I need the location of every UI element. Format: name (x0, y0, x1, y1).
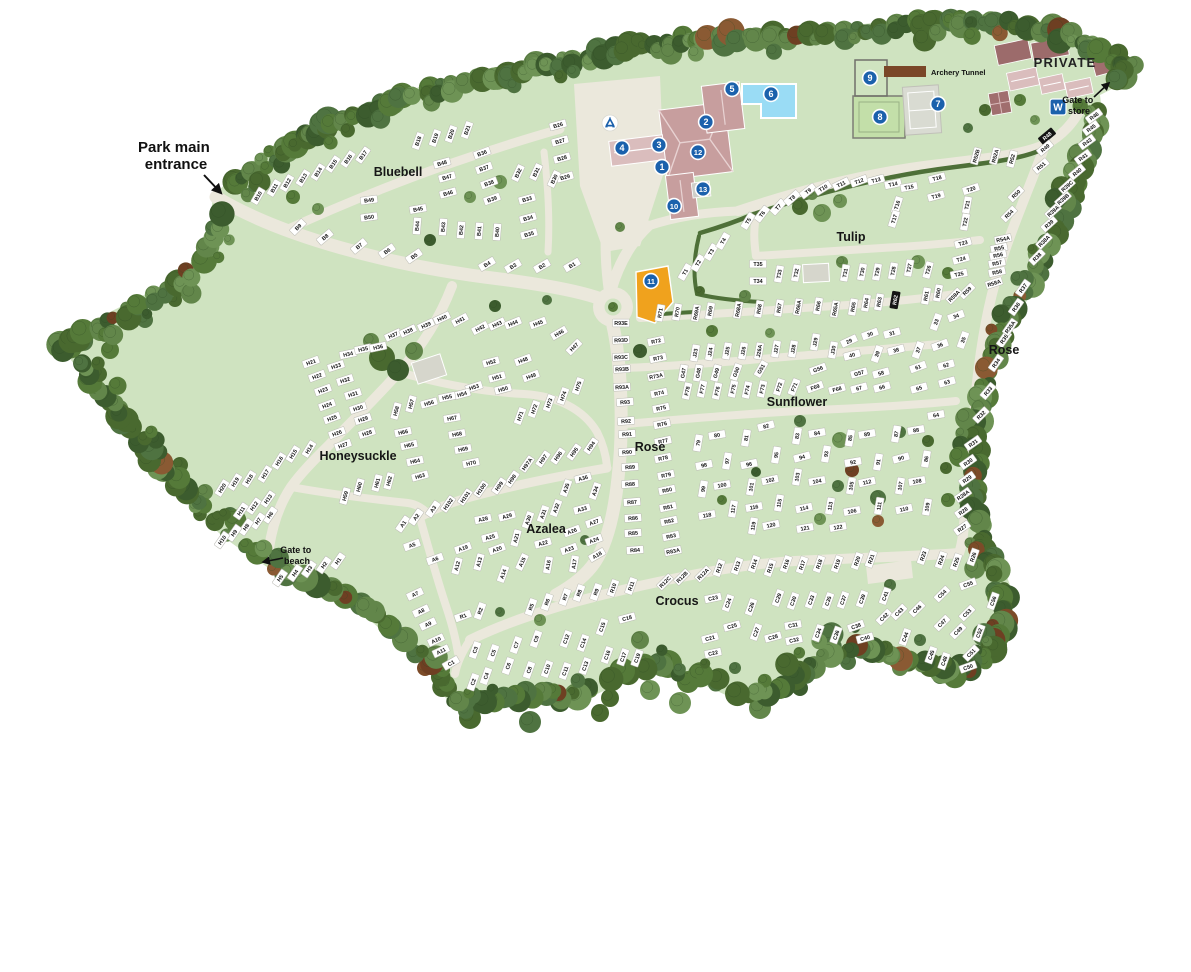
area-label: Honeysuckle (319, 449, 396, 463)
tree (286, 190, 300, 204)
tree (813, 204, 831, 222)
tree (534, 614, 546, 626)
svg-text:88: 88 (913, 428, 920, 435)
plot-marker: R93E (613, 319, 630, 327)
plot-marker: R85 (624, 528, 642, 537)
tree (424, 234, 436, 246)
svg-text:R92: R92 (621, 419, 631, 426)
facility-marker-4: 4 (615, 141, 630, 156)
tree (747, 683, 765, 701)
tree (1030, 115, 1040, 125)
svg-text:91: 91 (876, 459, 883, 466)
svg-text:2: 2 (703, 117, 708, 127)
facility-marker-11: 11 (644, 274, 659, 289)
archery-tunnel-strip (884, 66, 926, 77)
facility-marker-1: 1 (655, 160, 670, 175)
plot-marker: R91 (618, 429, 636, 438)
svg-text:87: 87 (894, 431, 901, 438)
area-label: Crocus (655, 594, 698, 608)
svg-text:R90: R90 (622, 450, 632, 457)
svg-text:5: 5 (729, 84, 734, 94)
tree (608, 302, 618, 312)
tree (571, 673, 586, 688)
tree (91, 357, 104, 370)
plot-marker: R93C (612, 353, 629, 362)
park-map: B1B2B3B4B5B6B7B8B9B10B11B12B13B14B15B16B… (0, 0, 1191, 972)
tree (751, 467, 761, 477)
tree (706, 325, 718, 337)
svg-text:89: 89 (864, 432, 871, 439)
plot-marker: R93 (616, 397, 634, 406)
svg-text:80: 80 (714, 433, 721, 440)
svg-text:8: 8 (877, 112, 882, 122)
plot-marker: R93B (613, 365, 630, 374)
tree (108, 377, 126, 395)
plot-marker: R84 (626, 545, 644, 554)
tree (213, 251, 225, 263)
tree (615, 222, 625, 232)
plot-marker: R87 (623, 497, 641, 506)
tree (775, 653, 799, 677)
tree (979, 104, 991, 116)
tree (356, 597, 377, 618)
plot-marker: R86 (624, 513, 642, 522)
tree (963, 27, 980, 44)
tree (729, 662, 741, 674)
area-label: Rose (635, 440, 666, 454)
svg-text:13: 13 (699, 185, 707, 194)
tree (387, 359, 409, 381)
svg-text:85: 85 (848, 435, 855, 442)
tree (145, 426, 157, 438)
tree (633, 344, 647, 358)
svg-text:R84: R84 (630, 548, 640, 555)
svg-text:R93B: R93B (615, 367, 629, 374)
facility-marker-10: 10 (667, 199, 682, 214)
tree (669, 692, 691, 714)
svg-text:6: 6 (768, 89, 773, 99)
svg-text:B43: B43 (441, 222, 448, 232)
plot-marker: R92 (617, 416, 635, 425)
tree (103, 325, 123, 345)
tree (416, 645, 429, 658)
plot-marker: B40 (492, 223, 501, 241)
svg-text:93: 93 (824, 451, 831, 458)
tree (725, 681, 750, 706)
svg-text:11: 11 (647, 277, 656, 286)
svg-text:7: 7 (935, 99, 940, 109)
svg-text:99: 99 (701, 486, 708, 493)
svg-text:B42: B42 (459, 225, 466, 235)
svg-text:R86: R86 (628, 516, 638, 523)
facility-marker-2: 2 (699, 115, 714, 130)
svg-text:10: 10 (670, 202, 678, 211)
tree (209, 201, 234, 226)
tree (1107, 69, 1127, 89)
plot-marker: T35 (750, 260, 767, 268)
tree (255, 540, 273, 558)
facility-building (803, 263, 830, 282)
svg-text:R93A: R93A (615, 385, 629, 392)
svg-text:B44: B44 (415, 221, 422, 231)
svg-text:79: 79 (696, 440, 703, 447)
area-label: Sunflower (767, 395, 828, 409)
plot-marker: B41 (474, 222, 483, 240)
facility-marker-12: 12 (691, 145, 706, 160)
svg-text:1: 1 (659, 162, 664, 172)
plot-marker: R88 (621, 479, 639, 488)
tree (963, 123, 973, 133)
tree (340, 123, 354, 137)
svg-text:84: 84 (814, 431, 821, 438)
svg-text:B40: B40 (495, 227, 502, 237)
svg-text:95: 95 (774, 452, 781, 459)
tree (640, 680, 660, 700)
tree (832, 480, 844, 492)
tree (403, 87, 421, 105)
tree (992, 304, 1011, 323)
plot-marker: B44 (412, 217, 421, 235)
tree (941, 493, 955, 507)
tree (965, 16, 978, 29)
svg-text:R88: R88 (625, 482, 635, 489)
svg-text:81: 81 (744, 435, 751, 442)
tree (986, 565, 1002, 581)
tree (599, 667, 624, 692)
plot-marker: R90 (618, 447, 636, 456)
tree (765, 328, 775, 338)
plot-marker: B42 (456, 221, 465, 239)
tree (567, 65, 580, 78)
tree (601, 689, 619, 707)
tree (739, 290, 751, 302)
svg-text:3: 3 (656, 140, 661, 150)
tree (495, 607, 505, 617)
tree (673, 663, 685, 675)
svg-text:64: 64 (933, 413, 940, 420)
svg-text:97: 97 (725, 458, 732, 465)
tree (982, 636, 992, 646)
svg-text:R91: R91 (622, 432, 632, 439)
facility-marker-7: 7 (931, 97, 946, 112)
svg-text:T35: T35 (753, 262, 762, 268)
tree (968, 510, 991, 533)
tree (519, 711, 541, 733)
plot-marker: T34 (750, 277, 767, 285)
tree (631, 631, 649, 649)
private-label: PRIVATE (1034, 55, 1097, 70)
area-label: Rose (989, 343, 1020, 357)
svg-text:R93: R93 (620, 400, 630, 407)
tree (74, 356, 88, 370)
tree (240, 538, 254, 552)
tree (717, 495, 727, 505)
svg-text:92: 92 (850, 460, 857, 467)
tree (940, 462, 952, 474)
tree (700, 658, 710, 668)
gate-beach-label: Gate to beach (280, 545, 314, 566)
svg-text:R93E: R93E (614, 321, 628, 327)
tree (914, 634, 926, 646)
recycle-icon (602, 115, 618, 131)
tree (405, 342, 423, 360)
facility-marker-13: 13 (696, 182, 711, 197)
tree (542, 295, 552, 305)
svg-text:4: 4 (619, 143, 624, 153)
tree (656, 644, 667, 655)
svg-text:R93D: R93D (614, 338, 628, 345)
entrance-arrow (204, 175, 221, 193)
tree (464, 191, 476, 203)
area-label: Bluebell (374, 165, 423, 179)
facility-marker-6: 6 (764, 87, 779, 102)
svg-text:86: 86 (924, 456, 931, 463)
tree (794, 415, 806, 427)
area-label: Azalea (526, 522, 567, 536)
tree (833, 194, 847, 208)
tree (766, 44, 782, 60)
tree (324, 136, 338, 150)
area-label: Tulip (837, 230, 866, 244)
svg-text:R85: R85 (628, 531, 638, 538)
plot-marker: R89 (621, 462, 639, 471)
tree (814, 513, 826, 525)
tree (142, 309, 152, 319)
svg-text:96: 96 (746, 461, 753, 468)
facility-marker-3: 3 (652, 138, 667, 153)
tree (922, 435, 934, 447)
tree (218, 508, 230, 520)
svg-text:12: 12 (694, 148, 702, 157)
facility-marker-8: 8 (873, 110, 888, 125)
facility-marker-9: 9 (863, 71, 878, 86)
plot-marker: R93D (612, 336, 629, 345)
svg-text:9: 9 (867, 73, 872, 83)
tree (591, 704, 609, 722)
archery-tunnel-label: Archery Tunnel (931, 68, 985, 77)
park-entrance-label: Park main entrance (138, 139, 214, 173)
svg-text:B41: B41 (477, 226, 484, 236)
svg-text:98: 98 (701, 462, 708, 469)
svg-text:R87: R87 (627, 500, 637, 507)
tree (489, 300, 501, 312)
tree (1014, 94, 1026, 106)
tree (695, 286, 705, 296)
tree (872, 515, 884, 527)
tree (814, 23, 836, 45)
tree (312, 203, 324, 215)
plot-marker: R93A (613, 383, 630, 392)
svg-text:T34: T34 (753, 279, 762, 285)
svg-text:R93C: R93C (614, 355, 628, 362)
plot-marker: B43 (438, 218, 447, 236)
facility-marker-5: 5 (725, 82, 740, 97)
svg-text:83: 83 (795, 433, 802, 440)
svg-text:R89: R89 (625, 465, 635, 472)
